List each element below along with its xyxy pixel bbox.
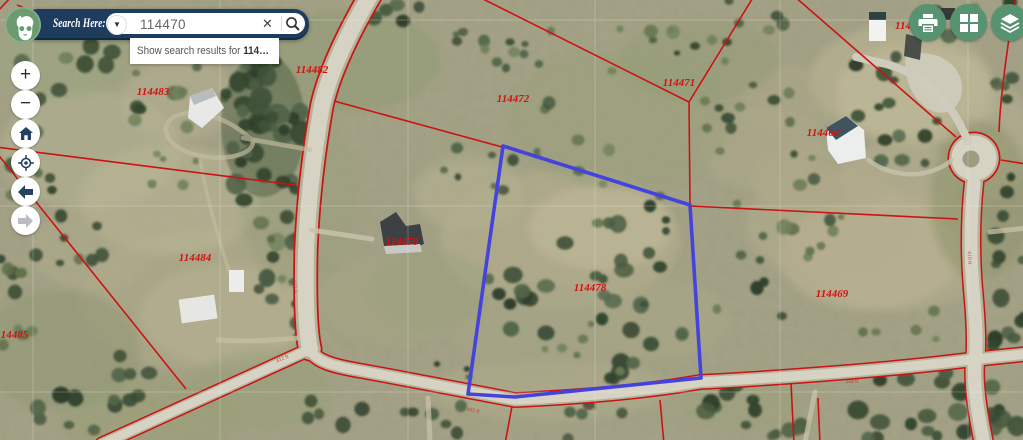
svg-text:114478: 114478 <box>574 282 607 294</box>
svg-text:114482: 114482 <box>296 64 329 76</box>
svg-text:114472: 114472 <box>497 93 530 105</box>
svg-text:114468: 114468 <box>807 127 840 139</box>
svg-text:610 ft: 610 ft <box>966 251 973 265</box>
svg-text:344 ft: 344 ft <box>845 378 859 386</box>
svg-text:114485: 114485 <box>0 329 29 341</box>
svg-text:322 ft: 322 ft <box>583 405 597 413</box>
svg-text:613 ft: 613 ft <box>291 280 299 294</box>
svg-text:114469: 114469 <box>816 288 849 300</box>
svg-text:114470: 114470 <box>386 236 419 248</box>
svg-text:114471: 114471 <box>663 77 695 89</box>
svg-text:114483: 114483 <box>137 86 170 98</box>
svg-text:114484: 114484 <box>179 252 212 264</box>
